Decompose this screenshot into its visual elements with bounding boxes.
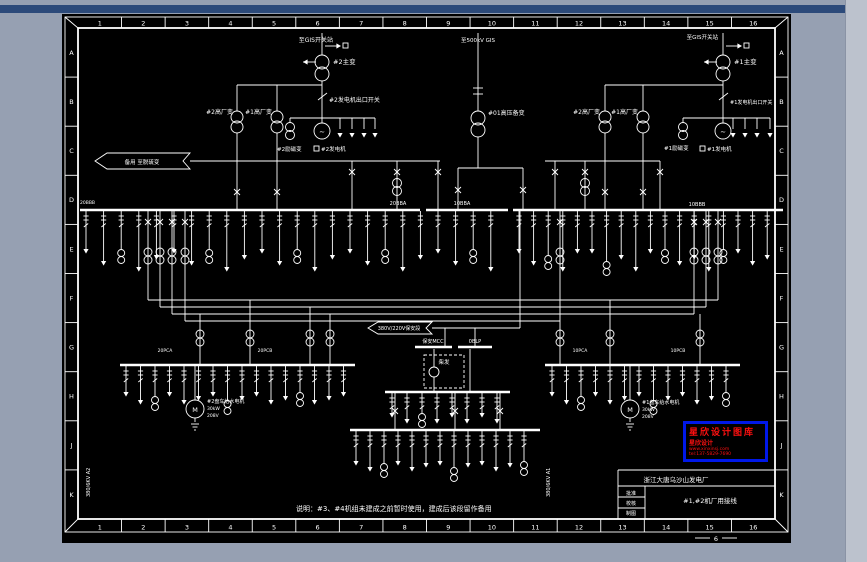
grid-row-A: A	[69, 49, 74, 57]
label-pc-10pca: 10PCA	[573, 348, 589, 354]
grid-col-2: 2	[141, 20, 145, 28]
grid-row-G: G	[779, 343, 784, 351]
grid-col-2: 2	[141, 524, 145, 532]
watermark-inner: 星欣设计图库 星欣设计 www.xinxinsj.com tel:137-582…	[685, 423, 766, 460]
grid-col-11: 11	[531, 20, 539, 28]
grid-col-9: 9	[446, 20, 450, 28]
grid-row-B: B	[779, 98, 783, 106]
watermark-subtitle: 星欣设计	[689, 438, 762, 447]
grid-col-15: 15	[706, 524, 714, 532]
grid-row-E: E	[69, 245, 73, 253]
grid-col-13: 13	[618, 524, 626, 532]
grid-col-10: 10	[488, 524, 496, 532]
grid-col-4: 4	[228, 524, 232, 532]
watermark-box: 星欣设计图库 星欣设计 www.xinxinsj.com tel:137-582…	[683, 421, 768, 462]
grid-col-7: 7	[359, 524, 363, 532]
motor-1-letter: M	[627, 406, 633, 414]
grid-row-K: K	[779, 491, 784, 499]
label-pc-20pca: 20PCA	[158, 348, 174, 354]
motor-2-letter: M	[192, 406, 198, 414]
grid-row-F: F	[70, 294, 74, 302]
label-motor-2-name: #2盘车给水电机	[207, 398, 244, 405]
label-standby-transformer: #01高压备变	[488, 109, 525, 117]
titleblock-approve: 批准	[626, 490, 636, 497]
label-to-gis-unit2: 至GIS开关站	[299, 36, 333, 44]
label-main-transformer-1: #1主变	[734, 57, 757, 66]
frame	[65, 17, 788, 532]
grid-col-5: 5	[272, 20, 276, 28]
label-motor-1-v: 208V	[642, 414, 655, 420]
grid-row-K: K	[69, 491, 74, 499]
label-gen-breaker-1: #1发电机出口开关	[730, 99, 772, 106]
grid-col-5: 5	[272, 524, 276, 532]
label-motor-2-kw: 30kW	[207, 406, 220, 412]
watermark-tel: tel:137-5829-7690	[689, 452, 762, 457]
note-text: 说明：#3、#4机组未建成之前暂时使用，建成后该段留作备用	[296, 504, 492, 513]
label-to-gis-standby: 至500kV GIS	[461, 37, 496, 44]
label-pc-10pcb: 10PCB	[671, 348, 686, 354]
grid-col-8: 8	[403, 524, 407, 532]
grid-col-11: 11	[531, 524, 539, 532]
label-to-gis-unit1: 至GIS开关站	[687, 33, 719, 41]
grid-row-F: F	[780, 294, 784, 302]
grid-row-E: E	[779, 245, 783, 253]
grid-col-12: 12	[575, 20, 583, 28]
diagram-lines	[148, 33, 775, 538]
label-security-mcc: 保安MCC	[422, 338, 444, 345]
label-rotated-a2: 380/6KV A2	[86, 468, 92, 497]
label-generator-1: #1发电机	[707, 145, 732, 153]
grid-row-A: A	[779, 49, 784, 57]
label-aux-transformer-2b: #1高厂变	[245, 108, 272, 116]
grid-row-G: G	[69, 343, 74, 351]
label-aux-transformer-1a: #2高厂变	[573, 108, 600, 116]
grid-row-B: B	[69, 98, 73, 106]
grid-col-4: 4	[228, 20, 232, 28]
grid-row-D: D	[69, 196, 74, 204]
frame-labels: 1122334455667788991010111112121313141415…	[69, 20, 784, 532]
grid-row-D: D	[779, 196, 784, 204]
label-diesel-generator: 柴发	[438, 358, 450, 366]
label-aux-transformer-2a: #2高厂变	[206, 108, 233, 116]
grid-col-15: 15	[706, 20, 714, 28]
label-rotated-a1: 380/6KV A1	[546, 468, 552, 497]
label-motor-1-name: #1盘车给水电机	[642, 399, 679, 406]
grid-row-J: J	[70, 442, 73, 450]
grid-col-8: 8	[403, 20, 407, 28]
label-motor-2-v: 208V	[207, 413, 220, 419]
label-bus-10bbb: 10BBB	[689, 202, 706, 208]
label-gen-breaker-2: #2发电机出口开关	[329, 96, 380, 104]
titleblock-check: 校核	[626, 500, 636, 507]
grid-col-3: 3	[185, 20, 189, 28]
titleblock-drawing-title: #1,#2机厂用接线	[683, 496, 737, 505]
callout-spare-left: 备用 至脱硫变	[125, 158, 160, 166]
watermark-title: 星欣设计图库	[689, 425, 762, 438]
label-bus-10bba: 10BBA	[454, 201, 471, 207]
grid-col-16: 16	[749, 524, 757, 532]
label-main-transformer-2: #2主变	[333, 57, 356, 66]
callout-security-section: 380V/220V保安段	[378, 325, 421, 332]
label-0blp: 0BLP	[469, 339, 481, 345]
grid-row-C: C	[69, 147, 74, 155]
desktop: { "colors":{"bg":"#96a0b2","topbar":"#2c…	[0, 0, 867, 562]
label-motor-1-kw: 30kW	[642, 407, 655, 413]
grid-col-1: 1	[98, 524, 102, 532]
titleblock-draft: 制图	[626, 510, 636, 517]
label-excitation-2: #2励磁变	[277, 145, 302, 153]
label-bus-20bba: 20BBA	[390, 201, 407, 207]
grid-row-C: C	[779, 147, 784, 155]
page-number: 6	[714, 535, 718, 543]
grid-col-10: 10	[488, 20, 496, 28]
grid-col-7: 7	[359, 20, 363, 28]
grid-col-3: 3	[185, 524, 189, 532]
label-pc-20pcb: 20PCB	[258, 348, 273, 354]
titleblock-plant-name: 浙江大唐乌沙山发电厂	[644, 475, 710, 484]
grid-col-6: 6	[316, 20, 320, 28]
grid-col-16: 16	[749, 20, 757, 28]
grid-col-12: 12	[575, 524, 583, 532]
grid-row-H: H	[779, 393, 784, 401]
grid-col-9: 9	[446, 524, 450, 532]
label-bus-left-end: 20BBB	[80, 200, 95, 206]
grid-col-13: 13	[618, 20, 626, 28]
generator-1-sine: ∼	[720, 128, 726, 136]
grid-col-14: 14	[662, 20, 670, 28]
grid-col-6: 6	[316, 524, 320, 532]
label-excitation-1: #1励磁变	[664, 144, 689, 152]
grid-col-1: 1	[98, 20, 102, 28]
grid-col-14: 14	[662, 524, 670, 532]
grid-row-J: J	[780, 442, 783, 450]
cad-drawing[interactable]: 1122334455667788991010111112121313141415…	[0, 0, 867, 562]
grid-row-H: H	[69, 393, 74, 401]
generator-2-sine: ∼	[319, 128, 325, 136]
label-aux-transformer-1b: #1高厂变	[611, 108, 638, 116]
label-generator-2: #2发电机	[321, 145, 346, 153]
